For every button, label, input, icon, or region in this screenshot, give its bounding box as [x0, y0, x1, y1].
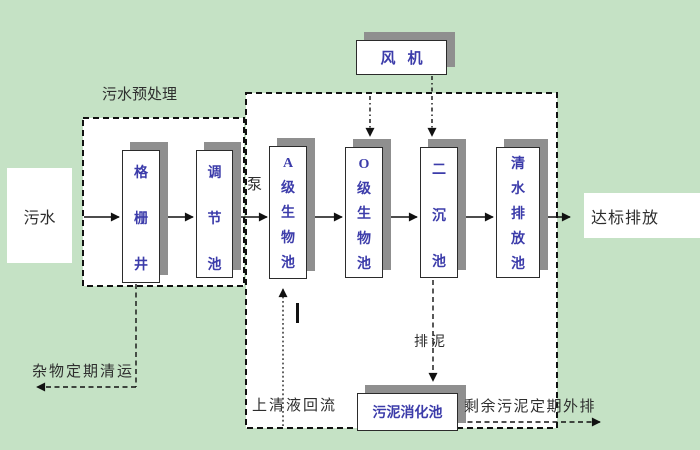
influent-box: 污水 — [7, 168, 72, 263]
secondary-sedimentation-tank-box: 二 沉 池 — [420, 147, 458, 278]
process-flow-diagram: 污水 达标排放 风机 格 栅 井 调 节 池 A 级 生 物 池 O 级 生 物… — [0, 0, 700, 450]
excess-sludge-discharge-label: 剩余污泥定期外排 — [464, 399, 596, 416]
grid-well-box: 格 栅 井 — [122, 150, 160, 283]
clear-water-discharge-tank-box: 清 水 排 放 池 — [496, 147, 540, 278]
debris-removal-label: 杂物定期清运 — [32, 364, 134, 381]
pump-label: 泵 — [247, 177, 262, 194]
influent-label: 污水 — [23, 204, 55, 228]
o-bio-tank-box: O 级 生 物 池 — [345, 147, 383, 278]
blower-label: 风机 — [368, 47, 434, 68]
effluent-label: 达标排放 — [591, 204, 659, 228]
blower-box: 风机 — [356, 40, 447, 75]
sludge-discharge-label: 排泥 — [414, 335, 448, 351]
regulating-tank-box: 调 节 池 — [196, 150, 233, 278]
pretreatment-zone-label: 污水预处理 — [102, 87, 177, 104]
a-bio-tank-box: A 级 生 物 池 — [269, 146, 307, 279]
supernatant-return-label: 上清液回流 — [252, 398, 337, 415]
sludge-digestion-tank-box: 污泥消化池 — [357, 393, 458, 431]
effluent-box: 达标排放 — [584, 193, 700, 238]
sludge-digestion-tank-label: 污泥消化池 — [373, 402, 443, 422]
